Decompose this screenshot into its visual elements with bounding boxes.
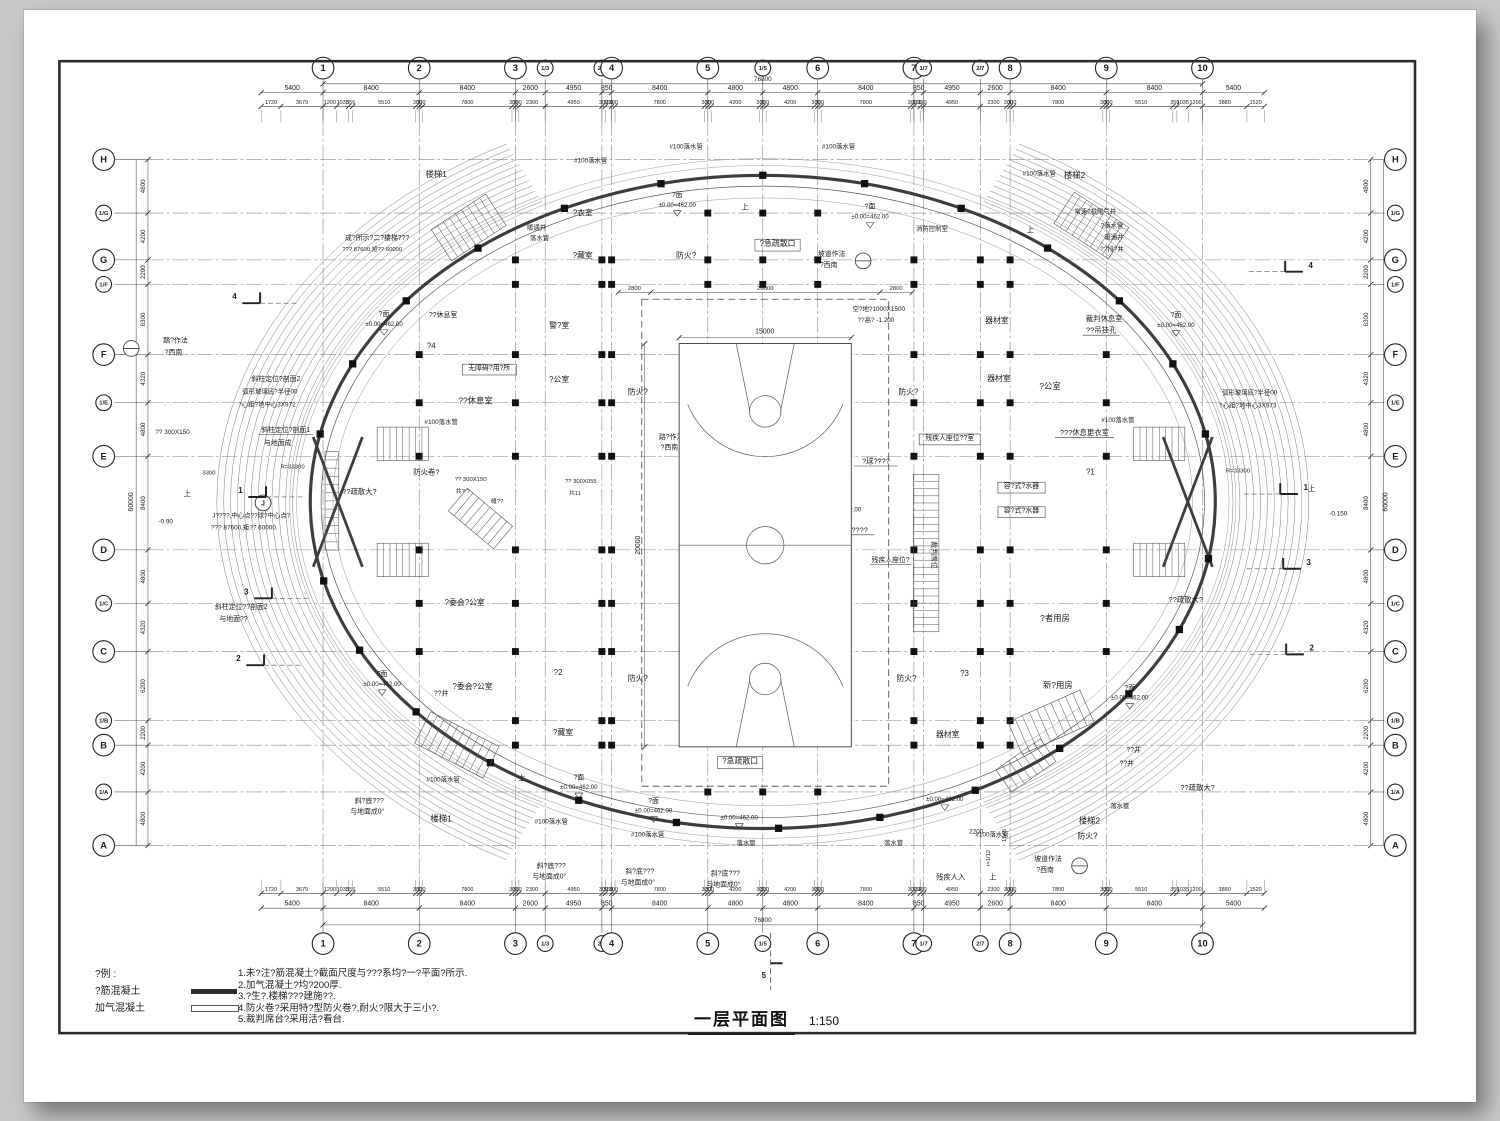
svg-text:1/7: 1/7 [920, 66, 929, 72]
hollow-swatch [191, 1005, 239, 1012]
svg-text:3679: 3679 [296, 100, 308, 106]
svg-text:4: 4 [232, 292, 237, 301]
svg-text:残疾人座位?: 残疾人座位? [872, 555, 910, 564]
svg-text:4200: 4200 [1363, 761, 1370, 775]
svg-text:10: 10 [1197, 939, 1207, 949]
svg-text:8: 8 [1007, 939, 1012, 949]
svg-text:7800: 7800 [654, 100, 666, 106]
svg-text:7800: 7800 [1052, 100, 1064, 106]
svg-text:#100落水管: #100落水管 [631, 829, 664, 838]
svg-text:1: 1 [320, 63, 325, 73]
svg-text:2: 2 [236, 654, 241, 663]
svg-text:与地面成0°: 与地面成0° [706, 880, 740, 889]
svg-text:?公室: ?公室 [549, 374, 569, 384]
svg-text:?急疏散口: ?急疏散口 [760, 238, 796, 248]
svg-text:850: 850 [601, 85, 613, 92]
svg-text:i=1/12: i=1/12 [986, 850, 992, 866]
svg-text:??井: ??井 [1126, 745, 1141, 754]
svg-text:8400: 8400 [652, 901, 667, 908]
svg-text:??井: ??井 [1120, 759, 1135, 768]
svg-text:??疏散大?: ??疏散大? [1180, 783, 1214, 792]
svg-text:76800: 76800 [754, 76, 772, 83]
svg-text:4: 4 [1309, 261, 1314, 270]
svg-text:2200: 2200 [140, 265, 147, 279]
svg-text:300: 300 [760, 100, 769, 106]
svg-text:??井: ??井 [434, 689, 449, 698]
svg-text:与地面成0°: 与地面成0° [350, 807, 384, 816]
svg-text:5400: 5400 [284, 901, 299, 908]
svg-text:6200: 6200 [140, 679, 147, 693]
svg-text:-0.150: -0.150 [1329, 511, 1348, 518]
svg-text:1720: 1720 [265, 100, 277, 106]
svg-text:±0.00=462.00: ±0.00=462.00 [635, 808, 673, 815]
svg-text:4800: 4800 [728, 901, 743, 908]
svg-text:5: 5 [705, 63, 710, 73]
legend: ?例 : ?筋混凝土 加气混凝土 [95, 966, 239, 1017]
svg-text:楼梯1: 楼梯1 [430, 814, 452, 824]
svg-text:6300: 6300 [1363, 312, 1370, 326]
svg-text:1545: 1545 [1002, 828, 1008, 842]
svg-text:R=33300: R=33300 [281, 464, 306, 470]
svg-text:5510: 5510 [1135, 100, 1147, 106]
svg-text:J: J [261, 500, 265, 507]
basketball-court [679, 344, 851, 747]
svg-text:???休息更衣室: ???休息更衣室 [1060, 428, 1109, 437]
svg-text:7800: 7800 [860, 100, 872, 106]
svg-text:暖通井: 暖通井 [527, 222, 546, 231]
svg-text:5400: 5400 [1226, 901, 1241, 908]
svg-text:8: 8 [1007, 63, 1012, 73]
svg-text:楼梯1: 楼梯1 [425, 169, 447, 179]
svg-text:F: F [101, 350, 107, 360]
svg-text:踏?作法: 踏?作法 [163, 336, 188, 345]
svg-text:1: 1 [320, 939, 325, 949]
svg-text:器材室: 器材室 [987, 373, 1011, 383]
svg-text:7800: 7800 [461, 100, 473, 106]
svg-text:落水管: 落水管 [736, 838, 755, 847]
svg-text:缝??: 缝?? [491, 497, 504, 505]
svg-text:楼梯2: 楼梯2 [1064, 170, 1086, 180]
svg-text:2200: 2200 [969, 828, 984, 835]
svg-text:B: B [100, 740, 107, 750]
svg-text:H: H [100, 155, 107, 165]
svg-text:A: A [100, 841, 107, 851]
svg-text:G: G [100, 255, 107, 265]
svg-text:1/F: 1/F [99, 282, 108, 288]
svg-text:?衣室: ?衣室 [573, 208, 593, 218]
svg-text:3: 3 [244, 587, 249, 596]
svg-text:1/F: 1/F [1391, 282, 1400, 288]
svg-text:8400: 8400 [652, 85, 667, 92]
svg-text:1/5: 1/5 [759, 66, 768, 72]
svg-text:与地面成: 与地面成 [264, 438, 292, 447]
svg-text:1520: 1520 [1249, 887, 1261, 893]
svg-text:2600: 2600 [523, 85, 538, 92]
svg-text:??休息室: ??休息室 [458, 396, 492, 406]
note-line: 4.防火卷?采用特?型防火卷?,耐火?限大于三小?. [238, 1003, 467, 1015]
svg-text:#100落水管: #100落水管 [424, 417, 457, 426]
svg-text:?面: ?面 [865, 203, 876, 211]
svg-text:?? 300X150: ?? 300X150 [455, 477, 487, 483]
svg-text:1200: 1200 [324, 100, 336, 106]
svg-text:1/7: 1/7 [920, 942, 929, 948]
svg-text:楼梯2: 楼梯2 [1079, 816, 1101, 826]
svg-text:±0.00=462.00: ±0.00=462.00 [926, 796, 964, 803]
svg-text:#100落水管: #100落水管 [426, 774, 459, 783]
svg-text:2300: 2300 [987, 100, 999, 106]
svg-text:8400: 8400 [1363, 496, 1370, 510]
svg-text:5510: 5510 [378, 887, 390, 893]
svg-text:?西南: ?西南 [165, 347, 183, 356]
svg-text:J????,中心点??球?中心点?: J????,中心点??球?中心点? [212, 511, 290, 520]
note-line: 3.?生?.楼梯???建施??. [238, 991, 467, 1003]
svg-text:?心距?地中心3X973: ?心距?地中心3X973 [1219, 400, 1277, 409]
svg-text:#100落水管: #100落水管 [1023, 168, 1056, 177]
svg-text:?球????: ?球???? [862, 457, 890, 466]
svg-text:斜?底???: 斜?底??? [355, 796, 384, 805]
svg-text:4200: 4200 [140, 761, 147, 775]
svg-text:?公室: ?公室 [1039, 381, 1060, 391]
svg-text:#100落水管: #100落水管 [822, 142, 855, 151]
svg-text:消防控制室: 消防控制室 [916, 223, 949, 232]
svg-text:5: 5 [762, 971, 767, 980]
svg-text:3679: 3679 [296, 887, 308, 893]
svg-text:8400: 8400 [1147, 901, 1162, 908]
svg-text:斜柱定位?剖面1: 斜柱定位?剖面1 [261, 425, 310, 434]
svg-text:上: 上 [184, 489, 191, 498]
svg-text:落水管: 落水管 [884, 838, 903, 847]
svg-text:上: 上 [1027, 225, 1034, 234]
solid-swatch [191, 989, 237, 994]
svg-text:9: 9 [1104, 63, 1109, 73]
svg-text:?1: ?1 [1086, 467, 1095, 476]
svg-text:?藏室: ?藏室 [553, 727, 573, 737]
note-line: 2.加气混凝土?均?200厚. [238, 980, 467, 992]
svg-text:无障碍?用?所: 无障碍?用?所 [468, 363, 510, 372]
legend-item-reinforced-concrete: ?筋混凝土 [95, 983, 239, 1000]
svg-text:裁判休息室: 裁判休息室 [1086, 314, 1123, 323]
svg-text:300: 300 [1007, 100, 1016, 106]
svg-text:5510: 5510 [1135, 887, 1147, 893]
svg-text:-0.90: -0.90 [158, 519, 173, 526]
legend-item-label: 加气混凝土 [95, 1000, 191, 1017]
svg-text:300: 300 [416, 100, 425, 106]
svg-text:4320: 4320 [1363, 620, 1370, 634]
svg-text:4200: 4200 [784, 100, 796, 106]
svg-text:E: E [1392, 451, 1398, 461]
svg-text:??? 87600,矩?? 60000.: ??? 87600,矩?? 60000. [211, 522, 278, 531]
svg-text:4950: 4950 [944, 85, 959, 92]
svg-text:H: H [1392, 155, 1399, 165]
svg-text:300: 300 [760, 887, 769, 893]
svg-text:B: B [1392, 740, 1399, 750]
svg-text:坡道作法: 坡道作法 [818, 249, 846, 258]
svg-text:3880: 3880 [1219, 887, 1231, 893]
svg-text:弧形玻璃底?半径00: 弧形玻璃底?半径00 [1222, 388, 1278, 397]
svg-text:3: 3 [513, 63, 518, 73]
svg-text:4800: 4800 [140, 569, 147, 583]
svg-text:4800: 4800 [1363, 422, 1370, 436]
svg-text:20000: 20000 [635, 535, 642, 554]
svg-text:8400: 8400 [460, 85, 475, 92]
svg-text:上: 上 [1308, 484, 1315, 493]
svg-text:G: G [1392, 255, 1399, 265]
svg-text:残疾人座位??室: 残疾人座位??室 [925, 433, 974, 442]
svg-text:8400: 8400 [858, 85, 873, 92]
svg-text:1/E: 1/E [1391, 401, 1400, 407]
svg-text:2: 2 [417, 939, 422, 949]
svg-text:5400: 5400 [284, 85, 299, 92]
svg-text:4: 4 [609, 63, 615, 73]
svg-text:8400: 8400 [1051, 85, 1066, 92]
floor-plan-canvas: 1122331/31/32/32/344551/51/566771/71/72/… [24, 10, 1476, 1102]
svg-text:300: 300 [513, 887, 522, 893]
svg-text:300: 300 [1103, 887, 1112, 893]
svg-text:2300: 2300 [526, 887, 538, 893]
svg-text:残疾人入: 残疾人入 [936, 873, 966, 882]
svg-text:8400: 8400 [140, 496, 147, 510]
svg-text:常速?机尾气井: 常速?机尾气井 [1074, 207, 1116, 216]
svg-text:新?用房: 新?用房 [1043, 680, 1073, 690]
svg-text:?西南: ?西南 [1036, 865, 1054, 874]
svg-text:E: E [101, 451, 107, 461]
svg-text:300: 300 [1103, 100, 1112, 106]
svg-text:共11: 共11 [569, 489, 581, 497]
svg-text:与地面??: 与地面?? [219, 614, 247, 623]
svg-text:1/C: 1/C [99, 601, 109, 607]
drawing-sheet: 1122331/31/32/32/344551/51/566771/71/72/… [24, 10, 1476, 1102]
svg-text:?急疏散口: ?急疏散口 [722, 756, 758, 766]
svg-text:6200: 6200 [1363, 679, 1370, 693]
svg-text:300: 300 [609, 887, 618, 893]
svg-text:8400: 8400 [1147, 85, 1162, 92]
svg-text:?藏室: ?藏室 [573, 250, 593, 260]
svg-text:1/C: 1/C [1391, 601, 1401, 607]
legend-item-label: ?筋混凝土 [95, 983, 191, 1000]
svg-text:8400: 8400 [460, 901, 475, 908]
svg-text:60000: 60000 [1382, 492, 1389, 511]
svg-text:1/3: 1/3 [541, 942, 550, 948]
svg-text:?面: ?面 [648, 797, 659, 805]
svg-text:2/7: 2/7 [976, 942, 985, 948]
svg-text:A: A [1392, 841, 1399, 851]
svg-text:4200: 4200 [784, 887, 796, 893]
svg-text:10: 10 [1197, 63, 1207, 73]
svg-text:上: 上 [518, 773, 525, 782]
svg-text:300: 300 [815, 887, 824, 893]
svg-text:防火?: 防火? [676, 250, 697, 260]
svg-text:弧形玻璃底?半径00: 弧形玻璃底?半径00 [242, 387, 298, 396]
svg-text:与地面成0°: 与地面成0° [532, 872, 566, 881]
svg-text:1/5: 1/5 [759, 942, 768, 948]
svg-text:2800: 2800 [890, 286, 904, 292]
svg-text:与地面成0°: 与地面成0° [621, 878, 655, 887]
svg-text:??高? -1.200: ??高? -1.200 [857, 315, 894, 324]
svg-text:300: 300 [815, 100, 824, 106]
svg-text:1720: 1720 [265, 887, 277, 893]
svg-text:6300: 6300 [140, 312, 147, 326]
svg-text:2: 2 [1310, 643, 1315, 652]
svg-text:容?式?水器: 容?式?水器 [1004, 481, 1039, 490]
svg-text:坡道作法: 坡道作法 [1034, 854, 1062, 863]
svg-text:2200: 2200 [1363, 725, 1370, 739]
svg-text:3300: 3300 [202, 470, 216, 476]
svg-text:7800: 7800 [461, 887, 473, 893]
svg-text:2: 2 [417, 63, 422, 73]
svg-text:4: 4 [609, 939, 615, 949]
svg-text:±0.00=462.00: ±0.00=462.00 [560, 784, 598, 791]
svg-text:8400: 8400 [364, 85, 379, 92]
legend-item-aerated-concrete: 加气混凝土 [95, 1000, 239, 1017]
svg-text:??休息室: ??休息室 [429, 310, 457, 319]
svg-text:#100落水管: #100落水管 [574, 156, 607, 165]
svg-text:850: 850 [913, 901, 925, 908]
svg-text:斜柱定位??剖面2: 斜柱定位??剖面2 [215, 602, 268, 611]
svg-text:1200: 1200 [1189, 887, 1201, 893]
svg-text:5510: 5510 [378, 100, 390, 106]
svg-text:2800: 2800 [628, 286, 642, 292]
svg-text:6: 6 [815, 939, 820, 949]
svg-text:2300: 2300 [526, 100, 538, 106]
svg-text:4950: 4950 [567, 100, 579, 106]
svg-text:防火?: 防火? [628, 387, 649, 397]
svg-text:落水管: 落水管 [1110, 801, 1129, 810]
svg-text:?西南: ?西南 [820, 260, 838, 269]
svg-text:#100落水管: #100落水管 [669, 142, 702, 151]
drawing-scale: 1:150 [809, 1014, 839, 1028]
note-line: 1.未?注?筋混凝土?截面尺度与???系均?一?平面?所示. [238, 968, 467, 980]
svg-text:300: 300 [917, 887, 926, 893]
svg-text:4950: 4950 [946, 887, 958, 893]
svg-text:#100落水管: #100落水管 [1101, 415, 1134, 424]
svg-text:#100落水管: #100落水管 [535, 817, 568, 826]
svg-text:9: 9 [1104, 939, 1109, 949]
svg-text:斜?底???: 斜?底??? [537, 861, 566, 870]
svg-text:7800: 7800 [1052, 887, 1064, 893]
svg-text:斜柱定位?剖面2: 斜柱定位?剖面2 [251, 374, 300, 383]
svg-text:6: 6 [815, 63, 820, 73]
svg-text:356: 356 [346, 100, 355, 106]
svg-text:2/7: 2/7 [976, 66, 985, 72]
svg-text:4800: 4800 [140, 422, 147, 436]
svg-text:4200: 4200 [1363, 229, 1370, 243]
svg-text:4200: 4200 [140, 229, 147, 243]
svg-text:R=33300: R=33300 [1226, 468, 1251, 474]
svg-text:??排?井: ??排?井 [1100, 244, 1123, 253]
svg-text:斜?底???: 斜?底??? [625, 867, 654, 876]
svg-text:4800: 4800 [728, 85, 743, 92]
svg-text:7800: 7800 [860, 887, 872, 893]
svg-text:2600: 2600 [988, 85, 1003, 92]
svg-text:1200: 1200 [1189, 100, 1201, 106]
svg-text:1/A: 1/A [99, 790, 109, 796]
svg-text:1035: 1035 [1177, 100, 1189, 106]
svg-text:4950: 4950 [566, 901, 581, 908]
svg-text:防火卷?: 防火卷? [413, 467, 439, 476]
svg-text:±0.00=462.00: ±0.00=462.00 [1157, 322, 1195, 329]
svg-text:4800: 4800 [783, 85, 798, 92]
svg-text:落水管: 落水管 [530, 233, 549, 242]
svg-text:D: D [100, 545, 107, 555]
svg-text:1/3: 1/3 [541, 66, 550, 72]
svg-text:76800: 76800 [754, 917, 772, 924]
svg-text:容?式?水器: 容?式?水器 [1004, 506, 1039, 515]
svg-text:3: 3 [1307, 558, 1312, 567]
svg-text:850: 850 [913, 85, 925, 92]
svg-text:300: 300 [513, 100, 522, 106]
svg-text:3880: 3880 [1219, 100, 1231, 106]
svg-text:356: 356 [346, 887, 355, 893]
svg-text:4320: 4320 [140, 371, 147, 385]
svg-text:1200: 1200 [324, 887, 336, 893]
svg-text:?面: ?面 [377, 670, 388, 678]
general-notes: 1.未?注?筋混凝土?截面尺度与???系均?一?平面?所示. 2.加气混凝土?均… [238, 968, 467, 1026]
svg-text:防火?: 防火? [628, 673, 649, 683]
svg-text:?? 300X055: ?? 300X055 [565, 479, 597, 485]
drawing-title: 一层平面图 [688, 1005, 795, 1035]
svg-text:防火?: 防火? [898, 387, 919, 397]
svg-text:?4: ?4 [427, 341, 436, 350]
svg-text:±0.00=462.00: ±0.00=462.00 [363, 681, 401, 688]
svg-text:300: 300 [609, 100, 618, 106]
svg-text:?面: ?面 [1171, 311, 1182, 319]
title-block: 一层平面图 1:150 [688, 1005, 839, 1035]
svg-text:上: 上 [989, 873, 996, 882]
svg-text:1/B: 1/B [1391, 719, 1400, 725]
svg-text:±0.00=462.00: ±0.00=462.00 [365, 321, 403, 328]
svg-text:3: 3 [513, 939, 518, 949]
svg-text:4800: 4800 [140, 179, 147, 193]
svg-text:300: 300 [416, 887, 425, 893]
svg-text:4800: 4800 [783, 901, 798, 908]
svg-text:5400: 5400 [1226, 85, 1241, 92]
svg-text:300: 300 [917, 100, 926, 106]
svg-text:5: 5 [705, 939, 710, 949]
svg-text:4800: 4800 [1363, 569, 1370, 583]
svg-text:成?所示?二?楼梯???: 成?所示?二?楼梯??? [345, 233, 409, 242]
svg-text:?面: ?面 [672, 191, 683, 199]
svg-text:F: F [1392, 350, 1398, 360]
svg-text:1035: 1035 [1177, 887, 1189, 893]
svg-text:4950: 4950 [944, 901, 959, 908]
svg-text:2200: 2200 [1363, 265, 1370, 279]
svg-text:斜?底???: 斜?底??? [711, 869, 740, 878]
svg-text:300: 300 [705, 100, 714, 106]
svg-text:?? 300X150: ?? 300X150 [155, 429, 190, 436]
svg-text:4800: 4800 [1363, 811, 1370, 825]
svg-text:±0.00=462.00: ±0.00=462.00 [851, 214, 889, 221]
svg-text:2600: 2600 [988, 901, 1003, 908]
svg-text:D: D [1392, 545, 1399, 555]
svg-text:?委会?公室: ?委会?公室 [445, 597, 485, 607]
svg-text:±0.00=462.00: ±0.00=462.00 [659, 202, 697, 209]
svg-text:裁判席位: 裁判席位 [930, 541, 939, 569]
svg-text:器材室: 器材室 [985, 315, 1009, 325]
svg-text:15000: 15000 [755, 329, 774, 336]
svg-text:7800: 7800 [654, 887, 666, 893]
svg-text:4800: 4800 [140, 811, 147, 825]
svg-text:1/A: 1/A [1391, 790, 1401, 796]
svg-text:±0.00=462.00: ±0.00=462.00 [721, 815, 759, 822]
svg-text:1/G: 1/G [99, 211, 109, 217]
note-line: 5.裁判席台?采用活?看台. [238, 1014, 467, 1026]
svg-text:上: 上 [741, 203, 748, 212]
svg-text:空?地?1000X1500: 空?地?1000X1500 [853, 304, 906, 313]
svg-text:??? 87600,矩?? 60000: ??? 87600,矩?? 60000 [342, 245, 403, 253]
svg-text:?3: ?3 [960, 669, 969, 678]
svg-text:1520: 1520 [1249, 100, 1261, 106]
svg-text:?面: ?面 [573, 773, 584, 781]
